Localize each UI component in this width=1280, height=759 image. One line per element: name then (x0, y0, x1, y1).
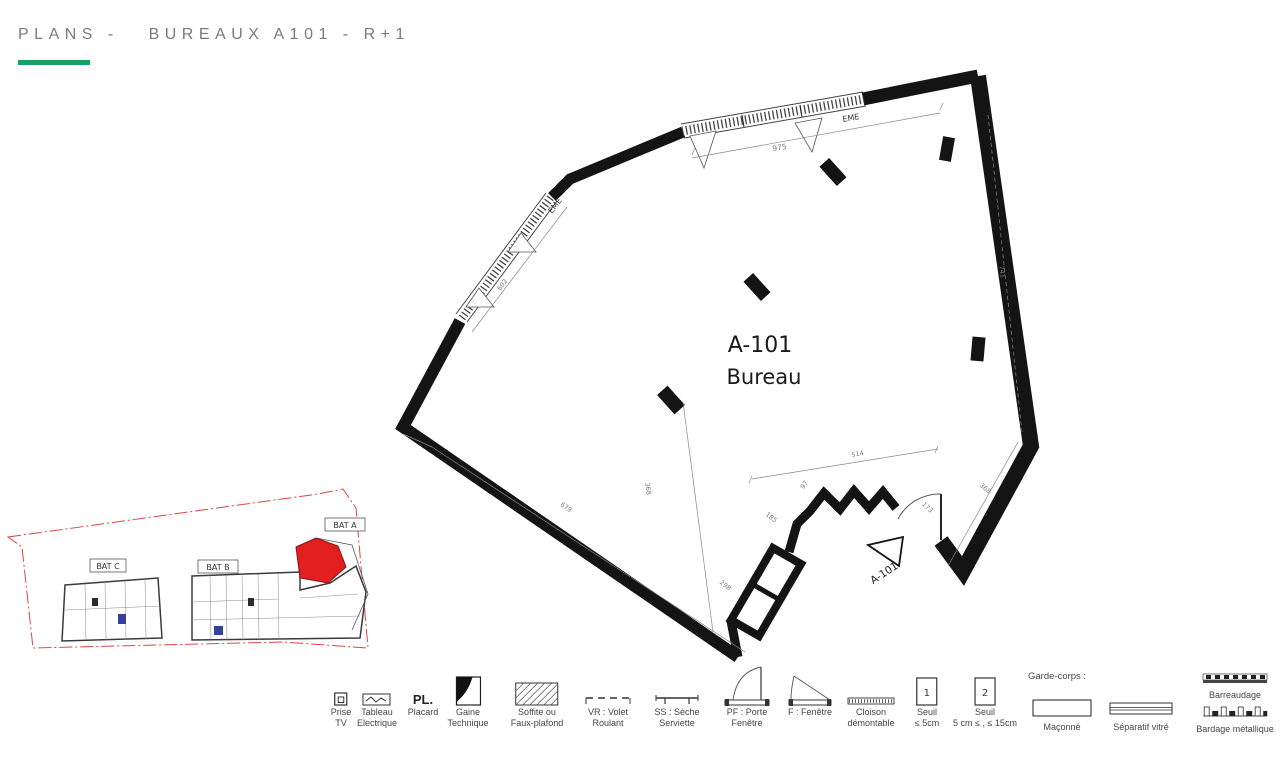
technical-shaft (731, 548, 801, 636)
svg-text:741: 741 (997, 265, 1006, 278)
legend-item-volet-roulant: VR : Volet Roulant (584, 671, 632, 728)
svg-text:1: 1 (924, 688, 930, 699)
bat-a-label: BAT A (333, 521, 357, 530)
bardage-metallique-icon (1202, 705, 1268, 719)
svg-text:602: 602 (495, 277, 509, 292)
legend-item-soffite: Soffite ou Faux-plafond (511, 671, 564, 728)
volet-roulant-icon (584, 671, 632, 707)
legend-item-bardage-metallique: Bardage métallique (1196, 705, 1274, 735)
svg-text:173: 173 (920, 500, 935, 514)
garde-corps-title: Garde-corps : (1028, 671, 1086, 682)
svg-text:97: 97 (799, 479, 810, 490)
legend-item-maconne: Maçonné (1032, 699, 1092, 733)
svg-text:185: 185 (764, 510, 779, 524)
seuil-2-icon: 2 (953, 671, 1017, 707)
seche-serviette-icon (654, 671, 700, 707)
svg-text:679: 679 (559, 501, 574, 515)
legend-item-porte-fenetre: PF : Porte Fenêtre (723, 671, 771, 728)
site-plan: BAT C BAT B BAT (8, 489, 368, 648)
svg-text:368: 368 (643, 482, 653, 495)
seuil-1-icon: 1 (915, 671, 939, 707)
top-window-band: EME (681, 92, 866, 168)
prise-tv-icon (331, 671, 352, 707)
unit-walls (403, 76, 1031, 657)
soffite-icon (511, 671, 564, 707)
room-label: A-101 Bureau (727, 333, 802, 389)
room-type-label: Bureau (727, 365, 802, 389)
separatif-vitre-icon (1109, 701, 1173, 717)
page: PLANS - BUREAUX A101 - R+1 (0, 0, 1280, 759)
legend-item-gaine-technique: Gaine Technique (447, 671, 488, 728)
cloison-demontable-icon (847, 671, 895, 707)
left-window-band: EME (456, 193, 564, 322)
legend-item-cloison-demontable: Cloison démontable (847, 671, 895, 728)
entry-marker-label: A-101 (868, 560, 900, 587)
legend-item-tableau-electrique: Tableau Electrique (357, 671, 397, 728)
entrance-door (898, 494, 941, 540)
svg-text:2: 2 (982, 688, 988, 699)
legend-item-separatif-vitre: Séparatif vitré (1109, 701, 1173, 733)
bat-b-label: BAT B (206, 563, 229, 572)
svg-text:975: 975 (772, 142, 788, 153)
svg-text:368: 368 (978, 481, 993, 495)
columns (657, 136, 985, 414)
entry-marker: A-101 (868, 537, 903, 587)
bat-c-label: BAT C (96, 562, 120, 571)
porte-fenetre-icon (723, 671, 771, 707)
window-swing-icon (508, 233, 536, 252)
maconne-icon (1032, 699, 1092, 717)
highlighted-unit (296, 538, 346, 583)
svg-text:514: 514 (851, 449, 865, 459)
gaine-technique-icon (447, 671, 488, 707)
legend-item-barreaudage: Barreaudage (1202, 672, 1268, 701)
dimension-lines (403, 103, 1022, 652)
tableau-electrique-icon (357, 671, 397, 707)
window-label-left: EME (546, 196, 563, 215)
legend-item-fenetre: F : Fenêtre (787, 671, 833, 718)
site-bat-c: BAT C (62, 559, 162, 641)
legend-item-seuil-2: 2 Seuil 5 cm ≤ , ≤ 15cm (953, 671, 1017, 728)
window-swing-icon (690, 131, 716, 168)
fenetre-icon (787, 671, 833, 707)
legend-item-seuil-1: 1 Seuil ≤ 5cm (915, 671, 939, 728)
room-id-label: A-101 (728, 333, 793, 358)
floor-plan-drawing: EME EME (0, 0, 1280, 759)
svg-text:298: 298 (718, 578, 733, 592)
legend-item-placard: PL. Placard (408, 671, 439, 718)
legend-item-seche-serviette: SS : Sèche Serviette (654, 671, 700, 728)
barreaudage-icon (1202, 672, 1268, 685)
legend-item-prise-tv: Prise TV (331, 671, 352, 728)
window-label-top: EME (842, 112, 860, 124)
placard-icon: PL. (413, 692, 433, 707)
